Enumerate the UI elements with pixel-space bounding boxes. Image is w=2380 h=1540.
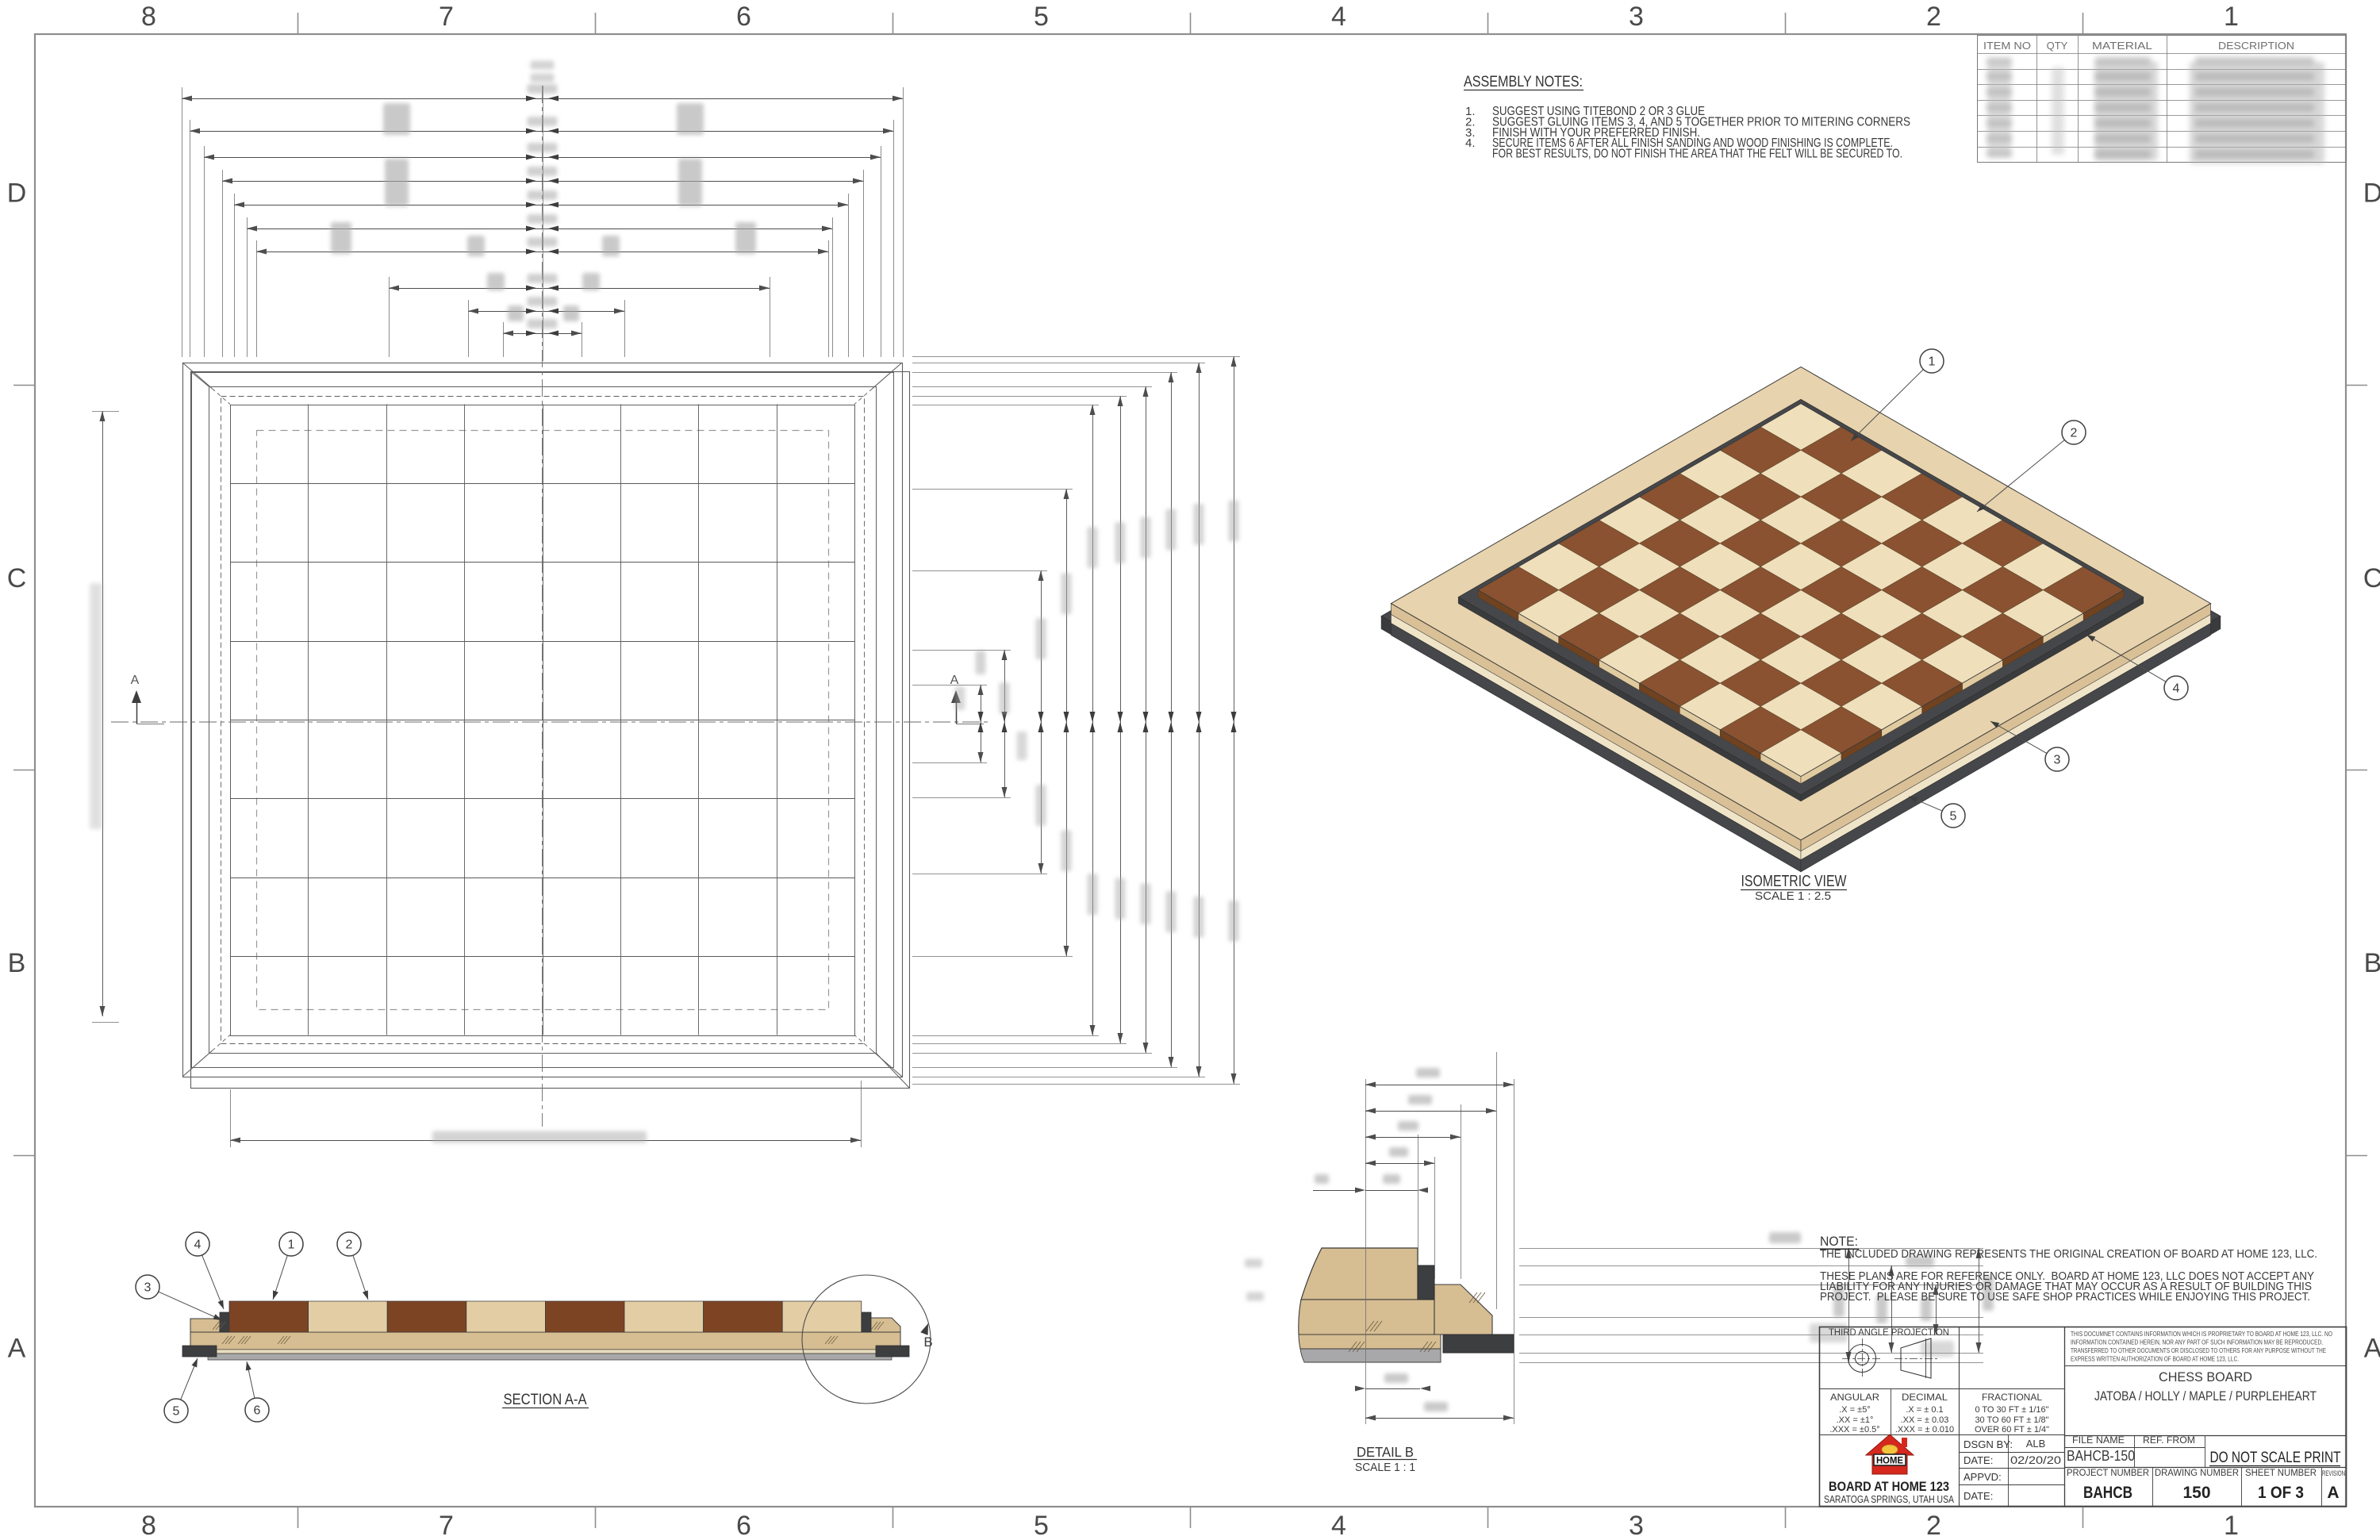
- svg-text:A: A: [2364, 1333, 2380, 1363]
- svg-text:C: C: [2363, 563, 2380, 593]
- svg-text:A: A: [2327, 1484, 2339, 1502]
- svg-text:1: 1: [2224, 1511, 2239, 1540]
- svg-text:THIS DOCUMNET CONTAINS INFORMA: THIS DOCUMNET CONTAINS INFORMATION WHICH…: [2071, 1330, 2332, 1338]
- svg-text:B: B: [2364, 948, 2380, 978]
- svg-text:JATOBA / HOLLY / MAPLE / PURPL: JATOBA / HOLLY / MAPLE / PURPLEHEART: [2094, 1388, 2317, 1404]
- svg-text:DSGN BY:: DSGN BY:: [1963, 1438, 2013, 1450]
- svg-text:.X = ± 0.1: .X = ± 0.1: [1906, 1405, 1943, 1415]
- svg-text:DRAWING NUMBER: DRAWING NUMBER: [2155, 1469, 2239, 1478]
- svg-text:1: 1: [1929, 355, 1936, 369]
- svg-text:6: 6: [736, 1511, 751, 1540]
- svg-text:SECTION A-A: SECTION A-A: [504, 1392, 587, 1408]
- svg-text:BAHCB: BAHCB: [2083, 1484, 2132, 1502]
- svg-text:EXPRESS WRITTEN AUTHORIZATION: EXPRESS WRITTEN AUTHORIZATION OF BOARD A…: [2071, 1355, 2239, 1363]
- svg-text:2: 2: [1926, 2, 1941, 32]
- svg-text:SCALE 1 : 1: SCALE 1 : 1: [1355, 1461, 1415, 1474]
- svg-text:B: B: [8, 948, 26, 978]
- svg-text:150: 150: [2182, 1484, 2210, 1502]
- svg-text:4: 4: [194, 1239, 202, 1252]
- svg-text:0 TO 30 FT ± 1/16": 0 TO 30 FT ± 1/16": [1975, 1405, 2048, 1415]
- svg-text:.XX = ± 0.03: .XX = ± 0.03: [1901, 1415, 1949, 1425]
- svg-text:CHESS BOARD: CHESS BOARD: [2159, 1369, 2252, 1384]
- svg-text:INFORMATION CONTAINED HEREIN,: INFORMATION CONTAINED HEREIN, NOR ANY PA…: [2071, 1338, 2323, 1346]
- svg-text:ASSEMBLY NOTES:: ASSEMBLY NOTES:: [1464, 74, 1583, 90]
- svg-text:5: 5: [173, 1405, 180, 1419]
- svg-text:6: 6: [736, 2, 751, 32]
- svg-text:DATE:: DATE:: [1963, 1490, 1993, 1502]
- svg-text:1: 1: [288, 1239, 295, 1252]
- svg-text:7: 7: [439, 2, 454, 32]
- svg-text:.XXX = ± 0.010: .XXX = ± 0.010: [1895, 1425, 1954, 1434]
- svg-text:ITEM NO: ITEM NO: [1983, 40, 2031, 52]
- svg-text:OVER 60 FT ± 1/4": OVER 60 FT ± 1/4": [1975, 1425, 2049, 1434]
- svg-text:FOR BEST RESULTS, DO NOT FINIS: FOR BEST RESULTS, DO NOT FINISH THE AREA…: [1492, 148, 1902, 161]
- svg-text:DESCRIPTION: DESCRIPTION: [2218, 40, 2294, 52]
- svg-text:3: 3: [144, 1281, 152, 1295]
- svg-text:4: 4: [1331, 2, 1346, 32]
- svg-text:4.: 4.: [1465, 136, 1476, 150]
- svg-text:BAHCB-150: BAHCB-150: [2067, 1448, 2135, 1464]
- svg-text:8: 8: [141, 2, 156, 32]
- svg-text:QTY: QTY: [2047, 40, 2068, 52]
- svg-text:MATERIAL: MATERIAL: [2092, 40, 2152, 52]
- svg-text:4: 4: [1331, 1511, 1346, 1540]
- svg-text:D: D: [2363, 179, 2380, 209]
- svg-text:C: C: [7, 563, 27, 593]
- svg-text:SARATOGA SPRINGS, UTAH USA: SARATOGA SPRINGS, UTAH USA: [1824, 1494, 1955, 1505]
- svg-text:REVISION: REVISION: [2322, 1469, 2345, 1478]
- svg-text:2: 2: [1926, 1511, 1941, 1540]
- svg-text:PROJECT NUMBER: PROJECT NUMBER: [2067, 1469, 2149, 1478]
- svg-text:TRANSFERRED TO OTHER DOCUMENTS: TRANSFERRED TO OTHER DOCUMENTS OR DISCLO…: [2071, 1346, 2326, 1354]
- svg-text:SHEET NUMBER: SHEET NUMBER: [2245, 1469, 2317, 1478]
- svg-text:.X = ±5°: .X = ±5°: [1839, 1405, 1870, 1415]
- svg-text:BOARD AT HOME 123: BOARD AT HOME 123: [1829, 1480, 1949, 1494]
- svg-text:REF. FROM: REF. FROM: [2143, 1436, 2195, 1446]
- svg-text:PROJECT. PLEASE BE SURE TO US: PROJECT. PLEASE BE SURE TO USE SAFE SHOP…: [1820, 1290, 2310, 1304]
- svg-text:FILE NAME: FILE NAME: [2072, 1436, 2125, 1446]
- svg-text:ISOMETRIC VIEW: ISOMETRIC VIEW: [1741, 873, 1847, 890]
- svg-text:2: 2: [2071, 427, 2078, 440]
- svg-text:SCALE 1 : 2.5: SCALE 1 : 2.5: [1755, 889, 1831, 903]
- svg-text:DO NOT SCALE PRINT: DO NOT SCALE PRINT: [2210, 1450, 2341, 1466]
- svg-text:3: 3: [1629, 2, 1644, 32]
- svg-text:6: 6: [254, 1404, 261, 1418]
- svg-text:.XX = ±1°: .XX = ±1°: [1837, 1415, 1874, 1425]
- svg-text:ALB: ALB: [2026, 1438, 2046, 1450]
- svg-text:4: 4: [2173, 682, 2180, 696]
- svg-text:3: 3: [1629, 1511, 1644, 1540]
- svg-text:02/20/20: 02/20/20: [2010, 1454, 2061, 1466]
- svg-text:A: A: [8, 1333, 26, 1363]
- svg-text:D: D: [7, 179, 27, 209]
- svg-text:DETAIL B: DETAIL B: [1357, 1444, 1414, 1460]
- svg-text:APPVD:: APPVD:: [1963, 1471, 2002, 1483]
- svg-text:FRACTIONAL: FRACTIONAL: [1982, 1393, 2043, 1403]
- svg-text:5: 5: [1034, 2, 1049, 32]
- svg-text:7: 7: [439, 1511, 454, 1540]
- svg-text:HOME: HOME: [1876, 1457, 1903, 1466]
- svg-text:THIRD ANGLE PROJECTION: THIRD ANGLE PROJECTION: [1829, 1328, 1949, 1338]
- svg-text:A: A: [131, 674, 140, 687]
- svg-text:DATE:: DATE:: [1963, 1454, 1993, 1466]
- svg-text:1: 1: [2224, 2, 2239, 32]
- svg-text:DECIMAL: DECIMAL: [1902, 1393, 1948, 1403]
- svg-text:5: 5: [1034, 1511, 1049, 1540]
- svg-text:8: 8: [141, 1511, 156, 1540]
- svg-text:THE INCLUDED DRAWING REPRESENT: THE INCLUDED DRAWING REPRESENTS THE ORIG…: [1820, 1247, 2317, 1261]
- svg-text:30 TO 60 FT ± 1/8": 30 TO 60 FT ± 1/8": [1975, 1415, 2048, 1425]
- svg-text:2: 2: [346, 1239, 353, 1252]
- svg-text:1 OF 3: 1 OF 3: [2258, 1484, 2304, 1502]
- svg-text:5: 5: [1950, 810, 1957, 824]
- svg-text:.XXX = ±0.5°: .XXX = ±0.5°: [1829, 1425, 1879, 1434]
- svg-text:ANGULAR: ANGULAR: [1830, 1393, 1879, 1403]
- svg-text:B: B: [923, 1335, 932, 1350]
- svg-text:3: 3: [2054, 754, 2061, 767]
